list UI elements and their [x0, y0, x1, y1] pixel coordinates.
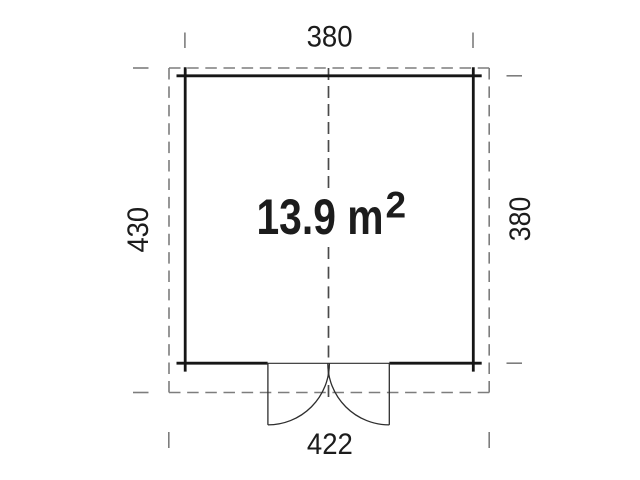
svg-text:2: 2 [386, 185, 407, 226]
svg-text:430: 430 [122, 207, 155, 253]
svg-text:380: 380 [307, 21, 353, 54]
svg-text:13.9 m: 13.9 m [257, 189, 384, 245]
svg-text:380: 380 [504, 197, 537, 242]
svg-text:422: 422 [307, 428, 353, 461]
